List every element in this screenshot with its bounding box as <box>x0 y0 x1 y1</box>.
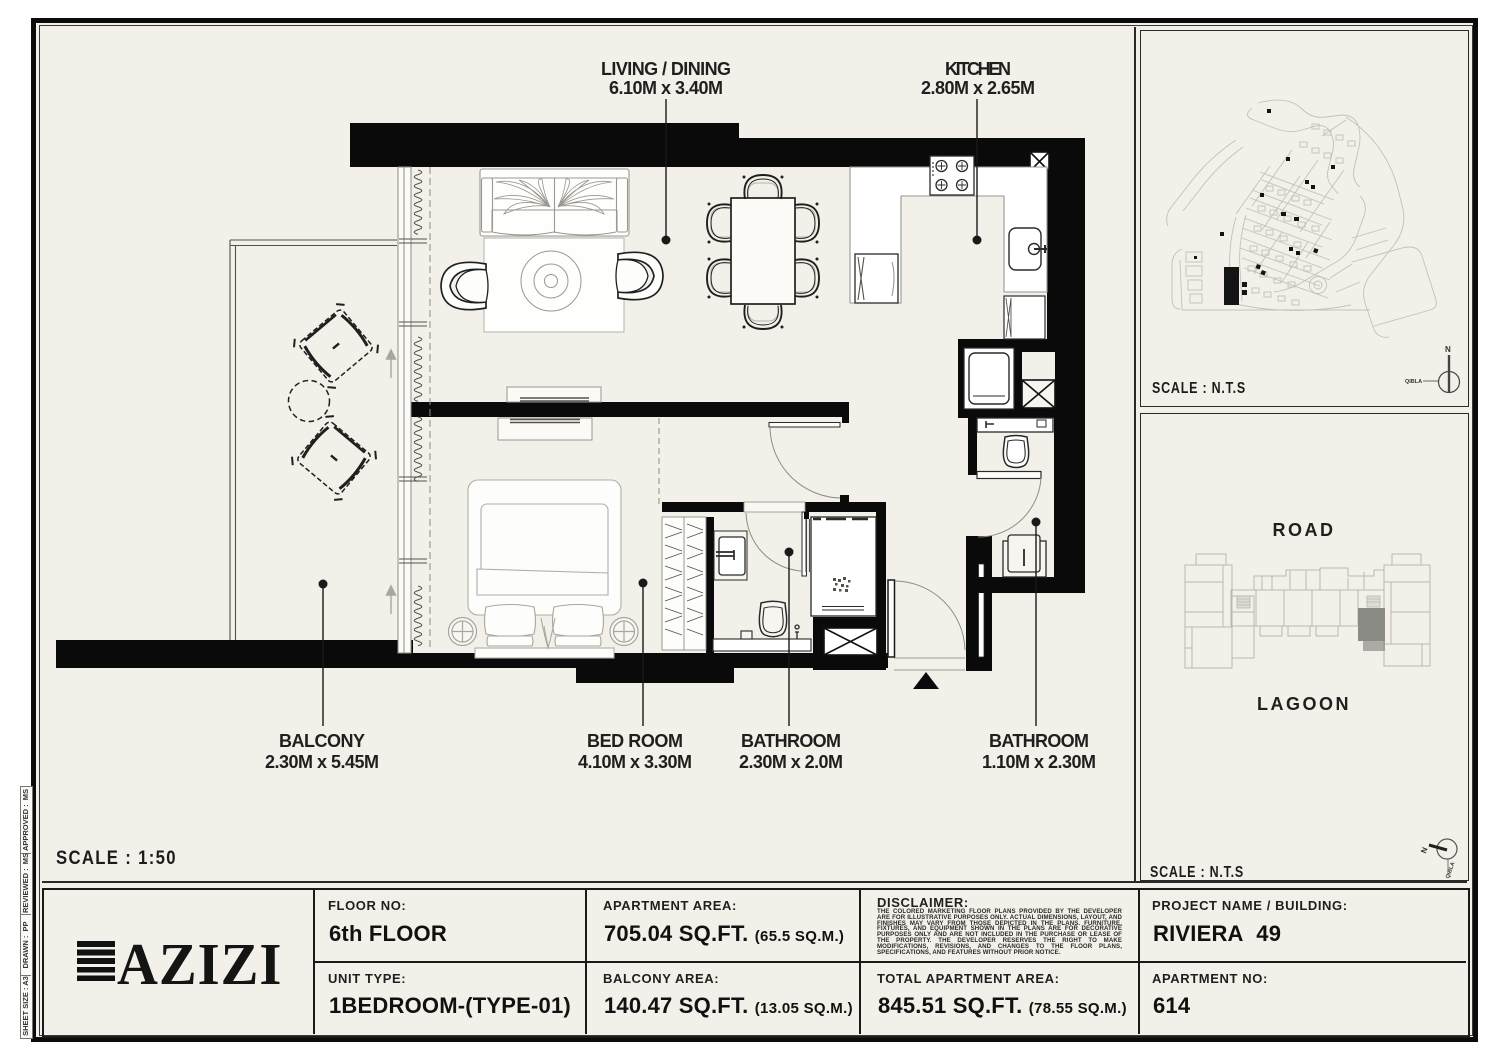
svg-text:N: N <box>1445 345 1451 354</box>
svg-text:6.10M x 3.40M: 6.10M x 3.40M <box>609 78 723 98</box>
svg-text:BATHROOM: BATHROOM <box>989 731 1089 751</box>
svg-text:KITCHEN: KITCHEN <box>945 59 1011 79</box>
svg-text:BED ROOM: BED ROOM <box>587 731 683 751</box>
svg-text:BATHROOM: BATHROOM <box>741 731 841 751</box>
svg-text:1.10M x 2.30M: 1.10M x 2.30M <box>982 752 1096 772</box>
svg-text:2.80M x 2.65M: 2.80M x 2.65M <box>921 78 1035 98</box>
svg-text:BALCONY: BALCONY <box>279 731 365 751</box>
svg-text:2.30M x 5.45M: 2.30M x 5.45M <box>265 752 379 772</box>
svg-text:QIBLA: QIBLA <box>1445 861 1456 879</box>
svg-text:N: N <box>1419 846 1430 855</box>
svg-text:4.10M x 3.30M: 4.10M x 3.30M <box>578 752 692 772</box>
svg-text:2.30M x 2.0M: 2.30M x 2.0M <box>739 752 843 772</box>
svg-text:QIBLA: QIBLA <box>1405 379 1422 385</box>
svg-text:LIVING / DINING: LIVING / DINING <box>601 59 731 79</box>
